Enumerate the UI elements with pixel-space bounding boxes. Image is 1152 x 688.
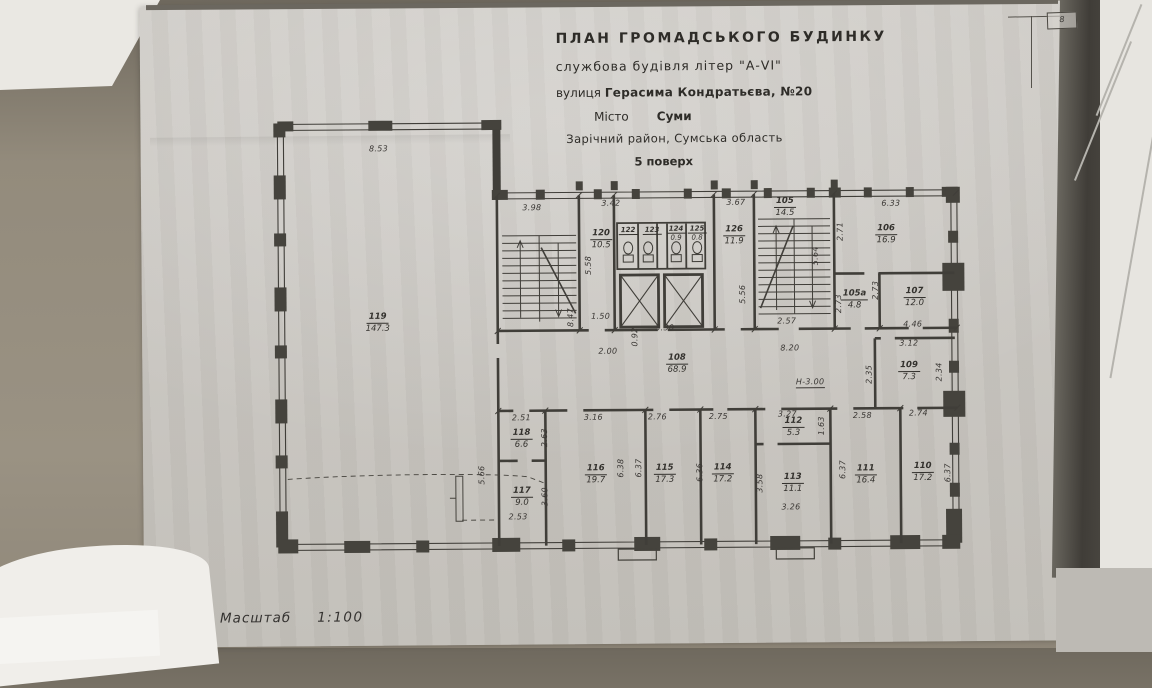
dim-label: 2.63 [540, 428, 549, 447]
dim-label: 2.57 [777, 316, 796, 325]
dim-label: 2.73 [871, 281, 880, 300]
plan-title: ПЛАН ГРОМАДСЬКОГО БУДИНКУ [556, 29, 856, 47]
elevator-shafts [620, 275, 702, 328]
dim-label: 2.51 [512, 413, 531, 422]
room-label-124: 1240.9 [667, 225, 686, 242]
dim-label: 3.42 [601, 199, 620, 208]
room-label-109: 1097.3 [898, 360, 920, 383]
room-label-122: 122 [619, 226, 638, 235]
dim-label: 8.47 [566, 308, 575, 327]
floor-plan: 119147.3 12010.5 122 123 1240.9 1250.8 1… [163, 82, 1107, 649]
dim-label: 3.12 [899, 339, 918, 348]
dim-label: 4.46 [903, 319, 922, 328]
dim-label: 6.37 [634, 458, 643, 477]
dim-label: 6.33 [881, 199, 900, 208]
dim-label: 5.58 [584, 256, 593, 275]
room-label-114: 11417.2 [712, 462, 734, 485]
dim-label: 6.37 [943, 463, 952, 482]
room-label-117: 1179.0 [511, 486, 533, 509]
room-label-106: 10616.9 [875, 223, 897, 246]
room-label-125: 1250.8 [688, 224, 707, 241]
dim-label: 2.76 [648, 412, 667, 421]
room-label-113: 11311.1 [782, 472, 804, 495]
dim-label: 5.66 [477, 466, 486, 485]
floor-plan-drawing [163, 82, 1107, 649]
scale-label: Масштаб [220, 610, 291, 627]
dim-label: 3.30 [655, 323, 674, 332]
room-label-123: 123 [643, 226, 662, 235]
exterior-notch-wall [492, 126, 500, 196]
dim-label: 1.50 [591, 312, 610, 321]
room-label-110: 11017.2 [912, 461, 934, 484]
dim-label: 2.73 [834, 294, 843, 313]
dim-label: 3.60 [540, 487, 549, 506]
paper-under-bottom-left2 [0, 610, 160, 665]
scale-value: 1:100 [317, 609, 364, 625]
dim-label: 1.63 [817, 416, 826, 435]
room-label-108: 10868.9 [666, 353, 688, 376]
dim-label: 0.92 [630, 327, 639, 346]
dim-label: 5.56 [738, 285, 747, 304]
room-label-105: 10514.5 [774, 196, 796, 219]
building-subtitle: службова будівля літер "А-VI" [556, 57, 856, 74]
dim-label: 2.75 [709, 412, 728, 421]
dim-label: 2.53 [509, 512, 528, 521]
sheet-number-stamp: 8 [1047, 11, 1078, 29]
dim-label: 2.58 [853, 411, 872, 420]
room-label-111: 11116.4 [855, 463, 877, 486]
height-mark: Н-3.00 [796, 377, 825, 388]
dim-label: 2.00 [598, 347, 617, 356]
staircase-right [758, 219, 831, 315]
dashed-outline [288, 474, 546, 523]
dim-label: 3.26 [781, 502, 800, 511]
room-label-105a: 105а4.8 [841, 288, 869, 311]
room-label-112: 1125.3 [782, 416, 804, 439]
dim-label: 3.16 [584, 413, 603, 422]
dim-label: 2.71 [836, 222, 845, 241]
dim-label: 2.34 [934, 362, 943, 381]
room-label-119: 119147.3 [365, 312, 390, 335]
dim-label: 6.37 [838, 460, 847, 479]
scale-line: Масштаб1:100 [220, 609, 364, 626]
wall-piers [273, 117, 966, 554]
stamp-frame-line-v [1031, 16, 1032, 88]
dim-label: 3.98 [522, 203, 541, 212]
dim-label: 8.53 [369, 144, 388, 153]
room-label-115: 11517.3 [654, 463, 676, 486]
dim-label: 3.58 [755, 474, 764, 493]
toilet-icons [623, 242, 702, 263]
dim-label: 2.35 [865, 365, 874, 384]
room-label-116: 11619.7 [585, 463, 607, 486]
dim-label: 5.64 [811, 246, 820, 265]
room-label-126: 12611.9 [723, 224, 745, 247]
room-label-107: 10712.0 [904, 286, 926, 309]
dim-label: 3.27 [778, 409, 797, 418]
room-label-120: 12010.5 [590, 228, 612, 251]
dim-label: 3.67 [726, 198, 745, 207]
dim-label: 6.36 [695, 463, 704, 482]
dim-label: 6.38 [616, 459, 625, 478]
dim-label: 2.74 [909, 408, 928, 417]
room-label-118: 1186.6 [511, 428, 533, 451]
dim-label: 8.20 [780, 343, 799, 352]
